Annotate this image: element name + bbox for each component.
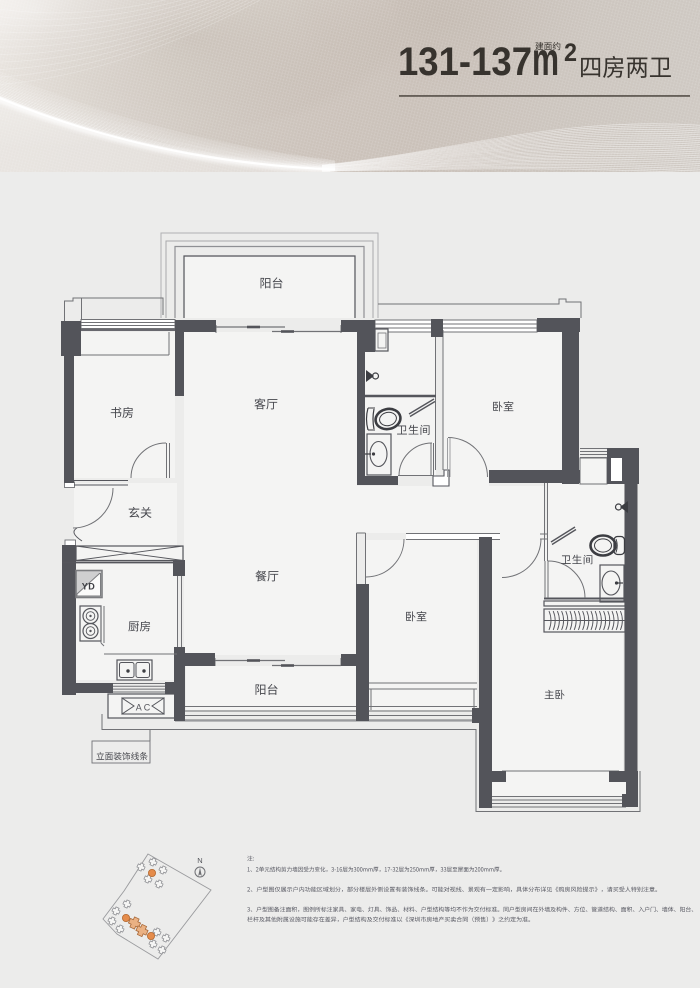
svg-text:YD: YD: [82, 582, 96, 592]
svg-text:N: N: [197, 856, 202, 865]
svg-text:131-137: 131-137: [398, 40, 532, 84]
svg-text:A C: A C: [136, 703, 151, 713]
svg-text:2: 2: [564, 39, 577, 67]
svg-text:m: m: [532, 33, 559, 85]
